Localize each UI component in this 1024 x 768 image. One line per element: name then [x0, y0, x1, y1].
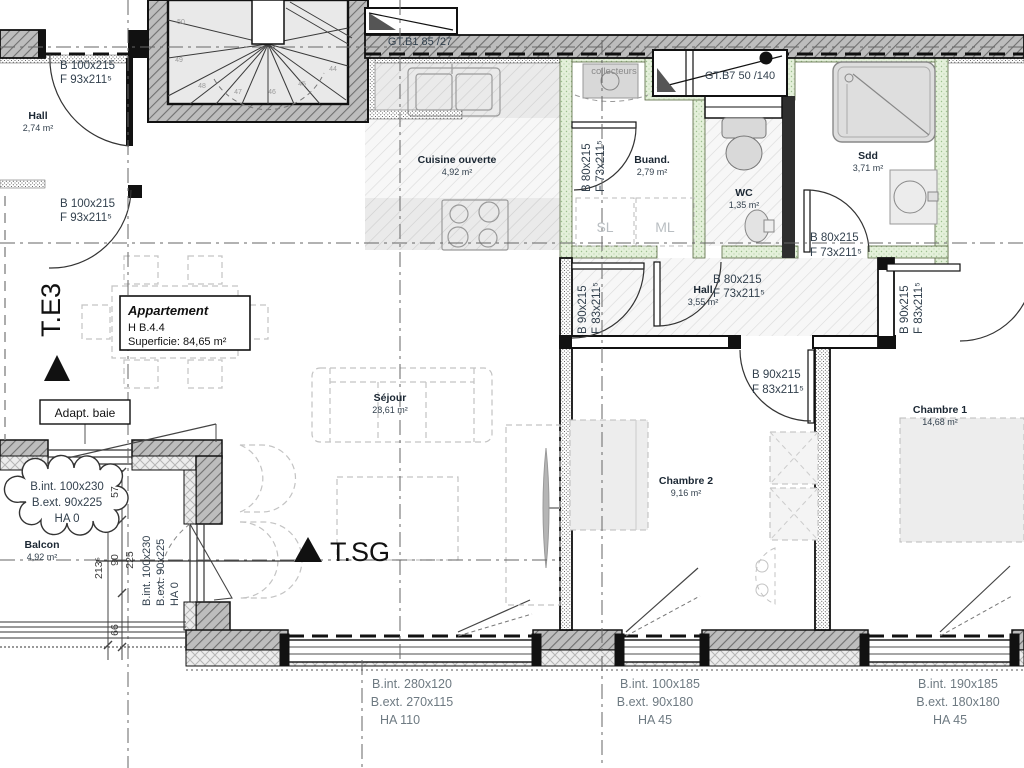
- dim-2135: 213⁵: [93, 557, 105, 579]
- collecteurs-label: collecteurs: [591, 66, 637, 77]
- svg-text:F 83x211⁵: F 83x211⁵: [913, 282, 925, 334]
- room-cuisine-area: 4,92 m²: [442, 167, 473, 177]
- stair-step: 46: [268, 89, 276, 96]
- te3-triangle-icon: [44, 355, 70, 381]
- stair-step: 48: [198, 83, 206, 90]
- room-balcon-name: Balcon: [24, 539, 59, 551]
- win-chambre1-l2: B.ext. 180x180: [916, 695, 999, 709]
- room-hall-entry-name: Hall: [28, 110, 47, 122]
- svg-text:F 83x211⁵: F 83x211⁵: [591, 282, 603, 334]
- door-buanderie-label: B 80x215 F 73x211⁵: [581, 140, 607, 192]
- door-wc-f: F 73x211⁵: [713, 288, 765, 300]
- duct-gtb1: [365, 8, 457, 34]
- gtb7-label: GT.B7 50 /140: [705, 70, 775, 82]
- room-chambre1-area: 14,68 m²: [922, 417, 958, 427]
- room-balcon-area: 4,92 m²: [27, 552, 58, 562]
- svg-text:B 80x215: B 80x215: [581, 143, 593, 192]
- room-wc-area: 1,35 m²: [729, 200, 760, 210]
- door-chambre2-b: B 90x215: [752, 369, 801, 381]
- room-wc-name: WC: [735, 187, 753, 199]
- door-entry-bottom-b: B 100x215: [60, 198, 115, 210]
- win-sejour-l3: HA 110: [380, 713, 420, 727]
- win-sejour-l1: B.int. 280x120: [372, 677, 452, 691]
- adapt-baie-label: Adapt. baie: [55, 406, 116, 420]
- gtb1-label: GT.B1 85 /27: [388, 36, 452, 48]
- balcon-side-label: B.int. 100x230 B.ext. 90x225 HA 0: [141, 536, 181, 606]
- duct-dot: [760, 52, 773, 65]
- bottom-windows: [280, 566, 1019, 666]
- cloud-l3: HA 0: [55, 513, 80, 525]
- svg-text:HA 0: HA 0: [169, 582, 181, 606]
- room-sejour-name: Séjour: [374, 392, 407, 404]
- floor-hatches: [365, 58, 878, 336]
- stair-step: 50: [177, 19, 185, 26]
- door-entry-top-b: B 100x215: [60, 60, 115, 72]
- room-buanderie-name: Buand.: [634, 154, 670, 166]
- win-sejour-l2: B.ext. 270x115: [371, 695, 454, 709]
- bed-chambre1: [900, 418, 1024, 542]
- door-sdd-b: B 80x215: [810, 232, 859, 244]
- tv-screen: [543, 448, 549, 568]
- dim-57: 57: [109, 486, 121, 498]
- svg-text:B 90x215: B 90x215: [577, 285, 589, 334]
- title-box-unit: H B.4.4: [128, 322, 165, 334]
- door-sdd-f: F 73x211⁵: [810, 247, 862, 259]
- door-chambre1-label: B 90x215 F 83x211⁵: [899, 282, 925, 334]
- ml-label: ML: [655, 219, 675, 235]
- balcony-railing: [0, 622, 186, 647]
- sl-label: SL: [596, 219, 613, 235]
- stair-step: 44: [329, 66, 337, 73]
- cloud-l2: B.ext. 90x225: [32, 497, 102, 509]
- armchair-1: [240, 445, 296, 512]
- side-table: [756, 548, 775, 604]
- room-sejour-area: 28,61 m²: [372, 405, 408, 415]
- svg-text:F 73x211⁵: F 73x211⁵: [595, 140, 607, 192]
- dim-66: 66: [109, 624, 121, 636]
- win-chambre2-l1: B.int. 100x185: [620, 677, 700, 691]
- stair-step: 45: [298, 81, 306, 88]
- dim-90: 90: [109, 554, 121, 566]
- window-sejour: [280, 600, 541, 666]
- win-chambre2-l2: B.ext. 90x180: [617, 695, 693, 709]
- floor-plan-svg: 50 49 48 47 46 45 44: [0, 0, 1024, 768]
- sdd-fixtures: [833, 62, 938, 224]
- win-chambre1-l1: B.int. 190x185: [918, 677, 998, 691]
- cloud-l1: B.int. 100x230: [30, 481, 104, 493]
- stair-step: 47: [234, 89, 242, 96]
- svg-text:B 90x215: B 90x215: [899, 285, 911, 334]
- floor-plan-canvas: 50 49 48 47 46 45 44: [0, 0, 1024, 768]
- svg-text:B.int. 100x230: B.int. 100x230: [141, 536, 153, 606]
- door-entry-bottom-f: F 93x211⁵: [60, 212, 112, 224]
- tsg-label: T.SG: [330, 537, 390, 567]
- te3-label: T.E3: [36, 283, 66, 337]
- room-chambre2-name: Chambre 2: [659, 475, 713, 487]
- toilet: [726, 136, 762, 170]
- tv-zone: [506, 425, 560, 605]
- window-chambre2: [615, 568, 709, 666]
- room-buanderie-area: 2,79 m²: [637, 167, 668, 177]
- staircase: 50 49 48 47 46 45 44: [148, 0, 368, 122]
- door-chambre2-f: F 83x211⁵: [752, 384, 804, 396]
- chambre2-furniture: [570, 420, 818, 604]
- win-chambre1-l3: HA 45: [933, 713, 967, 727]
- room-cuisine-name: Cuisine ouverte: [418, 154, 497, 166]
- title-box-area: Superficie: 84,65 m²: [128, 336, 227, 348]
- room-hall-entry-area: 2,74 m²: [23, 123, 54, 133]
- door-wc-b: B 80x215: [713, 274, 762, 286]
- door-entry-top-f: F 93x211⁵: [60, 74, 112, 86]
- stair-step: 49: [175, 57, 183, 64]
- window-chambre1: [860, 566, 1019, 666]
- room-sdd-name: Sdd: [858, 150, 878, 162]
- dim-225: 225: [124, 551, 136, 569]
- room-chambre1-name: Chambre 1: [913, 404, 967, 416]
- room-hall-night-name: Hall: [693, 284, 712, 296]
- room-chambre2-area: 9,16 m²: [671, 488, 702, 498]
- tsg-triangle-icon: [294, 537, 322, 562]
- svg-text:B.ext. 90x225: B.ext. 90x225: [155, 539, 167, 606]
- title-box-name: Appartement: [127, 303, 209, 318]
- room-sdd-area: 3,71 m²: [853, 163, 884, 173]
- marker-te3: T.E3: [36, 283, 70, 381]
- win-chambre2-l3: HA 45: [638, 713, 672, 727]
